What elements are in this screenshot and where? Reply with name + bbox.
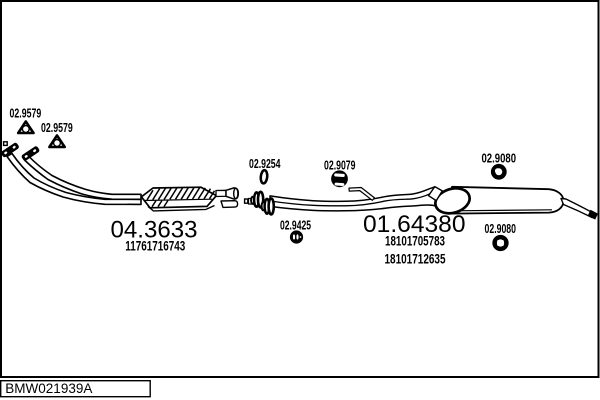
svg-text:02.9425: 02.9425 bbox=[280, 218, 311, 232]
svg-text:02.9080: 02.9080 bbox=[485, 222, 517, 236]
svg-text:02.9079: 02.9079 bbox=[324, 159, 356, 173]
svg-text:02.9579: 02.9579 bbox=[10, 106, 42, 120]
svg-text:BMW021939A: BMW021939A bbox=[5, 381, 92, 396]
svg-text:18101712635: 18101712635 bbox=[385, 251, 446, 267]
svg-text:02.9080: 02.9080 bbox=[482, 151, 517, 165]
svg-text:02.9579: 02.9579 bbox=[41, 121, 73, 135]
svg-text:02.9254: 02.9254 bbox=[249, 157, 281, 171]
svg-text:18101705783: 18101705783 bbox=[385, 233, 445, 249]
svg-text:11761716743: 11761716743 bbox=[125, 239, 185, 255]
